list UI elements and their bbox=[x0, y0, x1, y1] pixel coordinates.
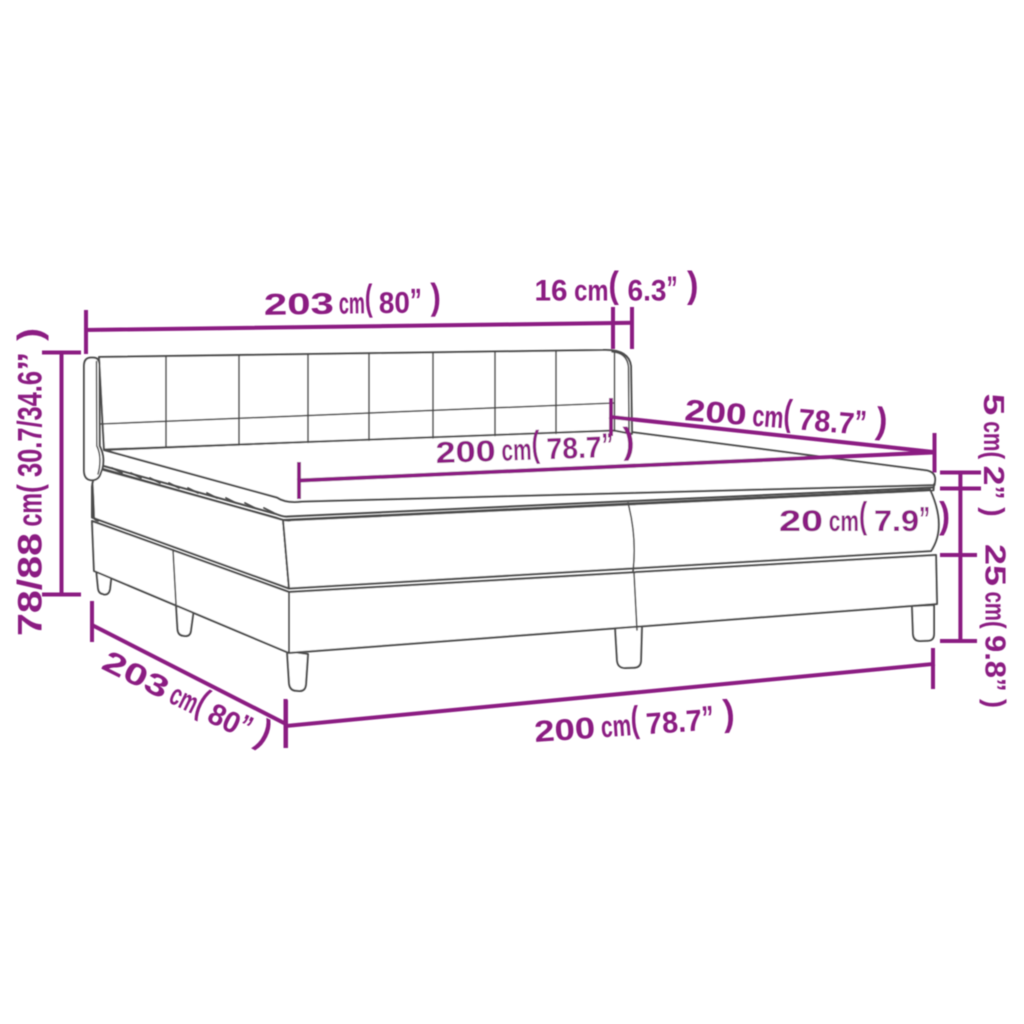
svg-text:78/88 cm( 30.7/34.6” ): 78/88 cm( 30.7/34.6” ) bbox=[12, 328, 50, 636]
svg-text:25 cm( 9.8” ): 25 cm( 9.8” ) bbox=[979, 544, 1011, 708]
svg-text:5 cm( 2” ): 5 cm( 2” ) bbox=[977, 394, 1009, 517]
